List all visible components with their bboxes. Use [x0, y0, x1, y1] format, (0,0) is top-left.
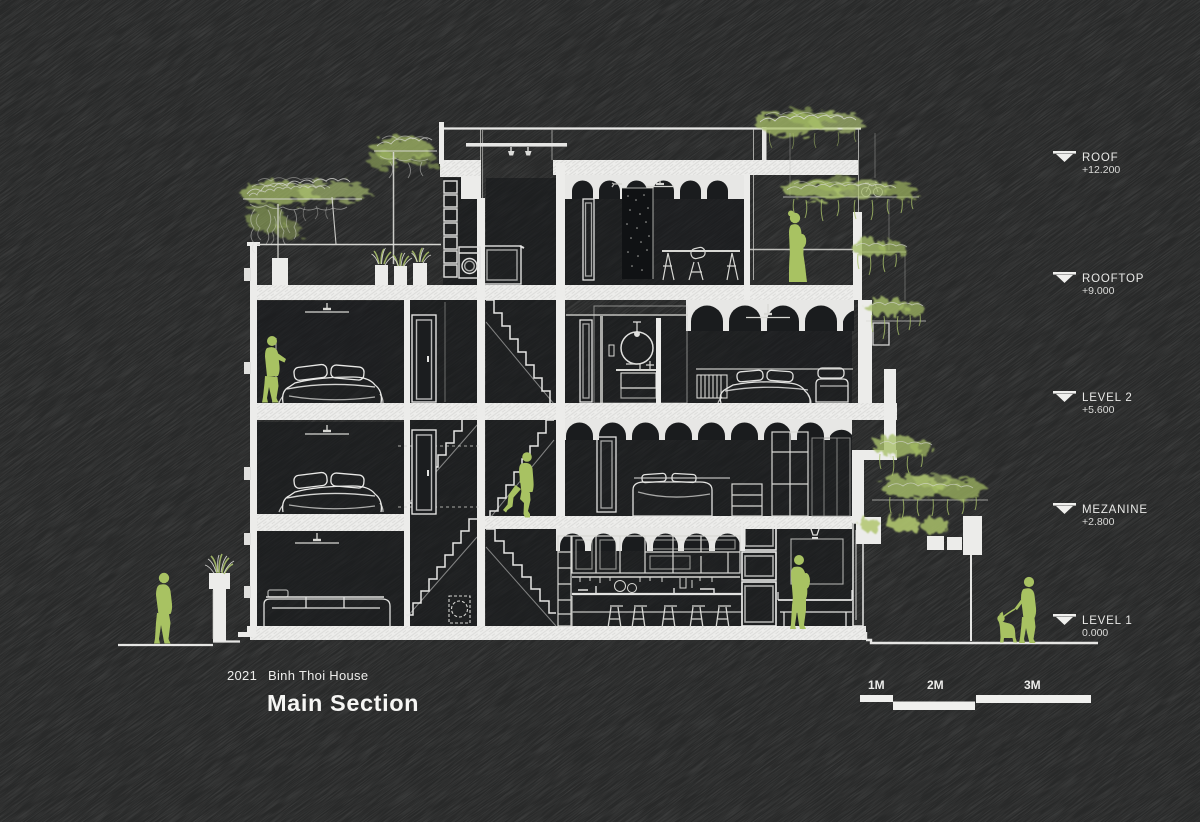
svg-text:Binh Thoi House: Binh Thoi House — [268, 668, 368, 683]
svg-text:0.000: 0.000 — [1082, 627, 1108, 639]
svg-text:ROOF: ROOF — [1082, 152, 1118, 164]
svg-text:2M: 2M — [927, 678, 944, 692]
svg-text:LEVEL 2: LEVEL 2 — [1082, 392, 1133, 404]
svg-text:+9.000: +9.000 — [1082, 285, 1115, 297]
svg-text:MEZANINE: MEZANINE — [1082, 504, 1148, 516]
svg-text:+2.800: +2.800 — [1082, 516, 1115, 528]
svg-text:+5.600: +5.600 — [1082, 404, 1115, 416]
svg-text:+12.200: +12.200 — [1082, 164, 1120, 176]
svg-text:Main Section: Main Section — [267, 690, 419, 716]
svg-text:3M: 3M — [1024, 678, 1041, 692]
svg-text:LEVEL 1: LEVEL 1 — [1082, 615, 1133, 627]
svg-text:ROOFTOP: ROOFTOP — [1082, 273, 1144, 285]
svg-text:2021: 2021 — [227, 668, 257, 683]
svg-text:1M: 1M — [868, 678, 885, 692]
